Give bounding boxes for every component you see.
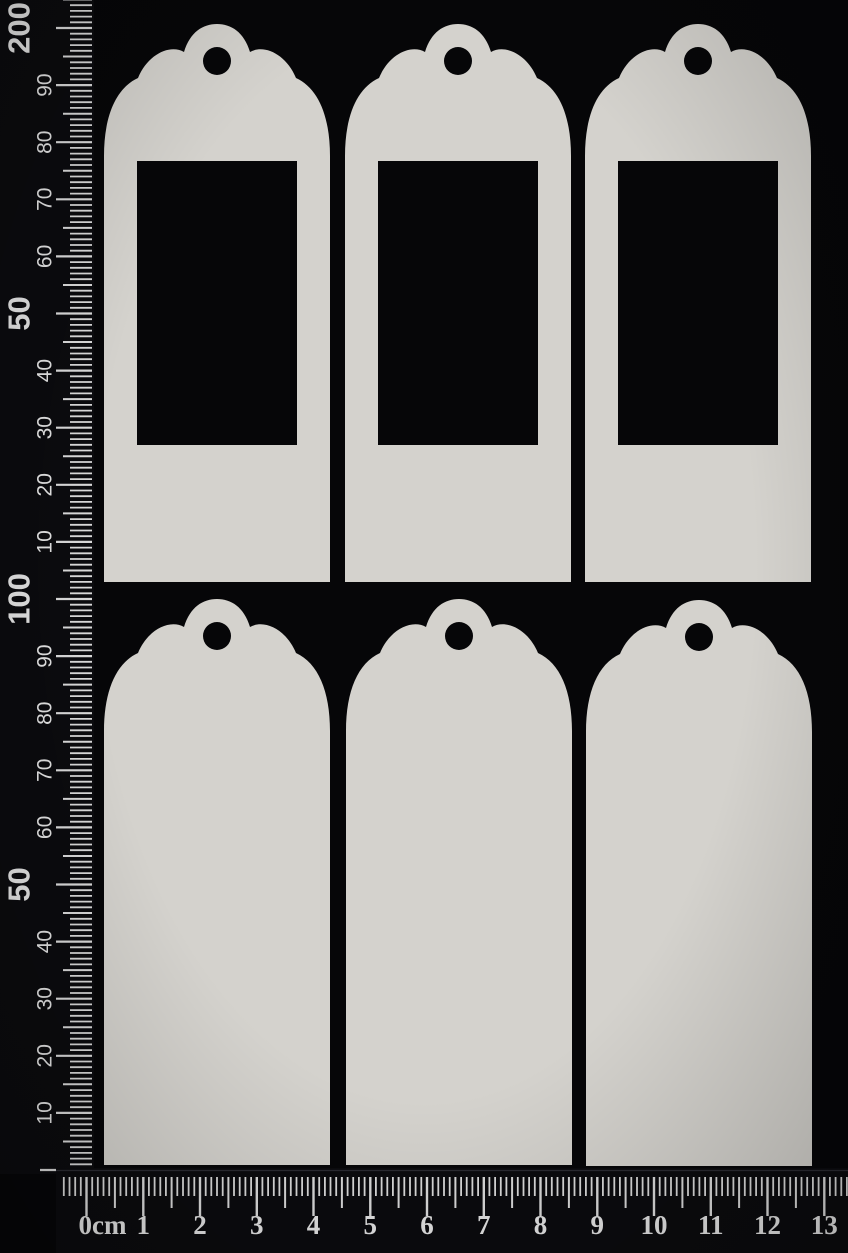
tag-shape-with-aperture bbox=[345, 24, 571, 582]
tag-shape-solid bbox=[586, 600, 812, 1166]
horizontal-ruler-label: 7 bbox=[477, 1210, 491, 1240]
tag-shape-with-aperture bbox=[104, 24, 330, 582]
tag-shape-solid bbox=[346, 599, 572, 1165]
product-photo: 2009080706050403020101009080706050403020… bbox=[0, 0, 848, 1253]
horizontal-ruler-label: 5 bbox=[364, 1210, 378, 1240]
tag-shape-solid bbox=[104, 599, 330, 1165]
horizontal-ruler-label: 10 bbox=[641, 1210, 668, 1240]
horizontal-ruler-label: 9 bbox=[591, 1210, 605, 1240]
aperture-tag-3 bbox=[585, 24, 811, 582]
solid-tag-5 bbox=[346, 599, 572, 1165]
horizontal-ruler-label: 2 bbox=[193, 1210, 207, 1240]
tag-shape-with-aperture bbox=[585, 24, 811, 582]
horizontal-ruler-label: 0cm bbox=[79, 1210, 127, 1240]
aperture-tag-1 bbox=[104, 24, 330, 582]
horizontal-ruler-label: 6 bbox=[420, 1210, 434, 1240]
horizontal-ruler-label: 12 bbox=[754, 1210, 781, 1240]
horizontal-ruler-label: 1 bbox=[137, 1210, 151, 1240]
aperture-tag-2 bbox=[345, 24, 571, 582]
solid-tag-4 bbox=[104, 599, 330, 1165]
horizontal-ruler-label: 8 bbox=[534, 1210, 548, 1240]
horizontal-ruler-label: 13 bbox=[811, 1210, 838, 1240]
solid-tag-6 bbox=[586, 600, 812, 1166]
horizontal-ruler-label: 4 bbox=[307, 1210, 321, 1240]
horizontal-ruler-label: 3 bbox=[250, 1210, 264, 1240]
horizontal-ruler-body bbox=[56, 1168, 848, 1253]
horizontal-ruler-label: 11 bbox=[698, 1210, 724, 1240]
